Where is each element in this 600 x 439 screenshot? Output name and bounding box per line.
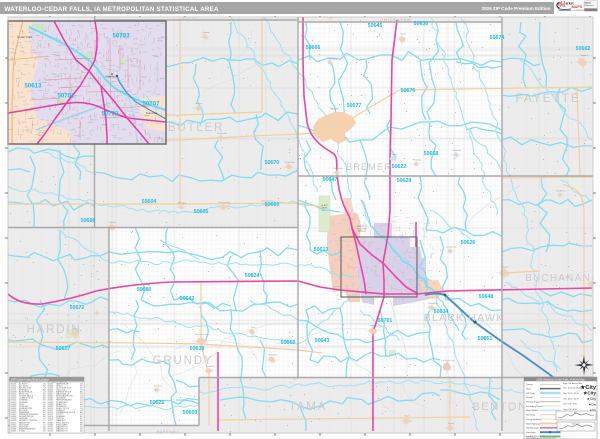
svg-text:Water Bodies: Water Bodies: [526, 409, 538, 412]
svg-text:Denver: Denver: [390, 153, 397, 156]
svg-text:50674: 50674: [490, 35, 505, 41]
svg-text:Rail Road: Rail Road: [526, 415, 536, 417]
svg-text:50613: 50613: [314, 247, 329, 253]
svg-text:50707: 50707: [143, 101, 161, 108]
svg-text:50668: 50668: [424, 151, 439, 157]
svg-text:BREMER: BREMER: [346, 162, 392, 172]
svg-text:US Highways: US Highways: [526, 428, 538, 430]
svg-text:County: County: [526, 383, 534, 386]
svg-text:State Highways: State Highways: [526, 422, 540, 425]
svg-text:Over 0.00 - 4.99: Over 0.00 - 4.99: [563, 408, 577, 411]
svg-text:Dysart: Dysart: [448, 422, 455, 425]
svg-text:ZIP Code ZIP Name Col: ZIP Code ZIP Name Col: [11, 381, 31, 383]
svg-text:Over 5.00 - 9.99: Over 5.00 - 9.99: [563, 403, 577, 406]
svg-text:Interstates: Interstates: [526, 431, 536, 434]
svg-text:50702: 50702: [102, 111, 120, 118]
svg-text:Parkersburg: Parkersburg: [218, 201, 231, 204]
svg-text:BUCHANAN: BUCHANAN: [525, 273, 591, 284]
svg-text:Over 70.00 per Sq Mi: Over 70.00 per Sq Mi: [563, 387, 582, 390]
svg-text:CHICKASAW: CHICKASAW: [380, 17, 411, 22]
svg-text:Cedar Falls: Cedar Falls: [17, 35, 33, 39]
svg-text:Kilometers: Kilometers: [572, 423, 581, 426]
svg-text:Tripoli: Tripoli: [400, 32, 406, 35]
svg-text:50629: 50629: [397, 178, 412, 184]
svg-text:50613: 50613: [25, 83, 43, 90]
svg-text:BENTON: BENTON: [472, 401, 527, 413]
svg-text:BLACK: BLACK: [321, 204, 328, 207]
svg-text:50608: 50608: [81, 218, 96, 224]
svg-text:★City: ★City: [587, 397, 597, 401]
svg-text:Beaman: Beaman: [154, 386, 163, 388]
svg-text:50638: 50638: [190, 346, 205, 352]
svg-text:Dike: Dike: [251, 327, 256, 329]
svg-text:50609: 50609: [183, 410, 198, 416]
svg-text:★City: ★City: [588, 402, 596, 406]
svg-text:GRUNDY: GRUNDY: [153, 355, 214, 367]
svg-text:Reinbeck: Reinbeck: [268, 354, 278, 356]
svg-text:Streets: Streets: [526, 396, 533, 399]
svg-text:50670: 50670: [265, 160, 280, 166]
svg-text:IONIA: IONIA: [19, 429, 25, 432]
svg-text:2026 ZIP Code Premium Edition: 2026 ZIP Code Premium Edition: [481, 6, 550, 11]
svg-text:ZIP Code: ZIP Code: [526, 393, 536, 395]
svg-text:FAYETTE: FAYETTE: [515, 91, 580, 105]
svg-text:State: State: [526, 387, 532, 390]
svg-text:Jesup: Jesup: [502, 267, 509, 269]
svg-text:50624: 50624: [245, 273, 260, 279]
svg-text:50672: 50672: [70, 305, 85, 311]
svg-text:50626: 50626: [461, 240, 476, 246]
svg-text:50662: 50662: [576, 46, 591, 52]
svg-text:TAMA: TAMA: [289, 401, 327, 413]
svg-text:2026 Waterloo-Cedar Falls, IA: 2026 Waterloo-Cedar Falls, IA MSA Map: [536, 377, 585, 381]
svg-text:50701: 50701: [378, 318, 393, 324]
svg-text:50648: 50648: [479, 294, 494, 300]
svg-text:50703: 50703: [113, 33, 131, 40]
svg-text:50665: 50665: [194, 209, 209, 215]
svg-text:50645: 50645: [368, 23, 383, 29]
svg-text:NAICS: NAICS: [585, 1, 592, 4]
svg-text:★City: ★City: [583, 391, 596, 396]
svg-text:50676: 50676: [401, 88, 416, 94]
svg-text:Hazleton: Hazleton: [557, 190, 566, 193]
svg-text:50645: 50645: [11, 430, 18, 432]
svg-text:Janesville: Janesville: [333, 168, 343, 170]
svg-text:50647: 50647: [323, 177, 338, 183]
svg-text:50703: 50703: [48, 430, 55, 432]
svg-text:Over 25.00 - 69.99: Over 25.00 - 69.99: [563, 392, 579, 395]
svg-text:Oelwein: Oelwein: [580, 55, 589, 57]
svg-text:Pops. Per Square Mile: Pops. Per Square Mile: [563, 382, 582, 385]
svg-text:La Porte City: La Porte City: [442, 359, 456, 362]
svg-text:50630: 50630: [414, 21, 429, 27]
svg-text:50642: 50642: [180, 296, 195, 302]
svg-text:Traer: Traer: [404, 414, 409, 417]
svg-text:Waverly: Waverly: [330, 108, 339, 111]
svg-text:Dunkerton: Dunkerton: [446, 246, 457, 249]
svg-text:Miles: Miles: [574, 413, 578, 415]
svg-text:Grundy Center: Grundy Center: [195, 333, 210, 336]
svg-text:WATERLOO-CEDAR FALLS, IA METRO: WATERLOO-CEDAR FALLS, IA METROPOLITAN ST…: [5, 6, 220, 13]
svg-text:50634: 50634: [434, 309, 449, 315]
svg-text:Waterloo: Waterloo: [105, 75, 117, 79]
svg-text:County Highways: County Highways: [526, 418, 542, 421]
svg-text:50677: 50677: [347, 103, 362, 109]
svg-text:50701: 50701: [58, 93, 76, 100]
svg-text:Greene: Greene: [202, 31, 210, 34]
svg-text:50622: 50622: [392, 164, 407, 170]
svg-text:50669: 50669: [281, 340, 296, 346]
svg-text:Shell Rock: Shell Rock: [285, 162, 296, 164]
svg-text:Primary Roads: Primary Roads: [526, 401, 540, 404]
svg-text:50680: 50680: [137, 287, 152, 293]
svg-text:50621: 50621: [150, 400, 165, 406]
svg-text:Plainfield: Plainfield: [327, 58, 337, 60]
svg-text:50643: 50643: [315, 338, 330, 344]
svg-text:50651: 50651: [478, 336, 493, 342]
svg-text:Ackley: Ackley: [110, 221, 117, 224]
svg-text:HARDIN: HARDIN: [27, 324, 82, 336]
svg-text:WATERLOO: WATERLOO: [56, 429, 68, 432]
svg-text:Reference: Reference: [585, 5, 595, 7]
svg-text:BUTLER: BUTLER: [168, 122, 224, 134]
svg-text:Over 10.00 - 24.99: Over 10.00 - 24.99: [563, 397, 579, 400]
svg-text:Readlyn: Readlyn: [413, 160, 422, 162]
svg-text:Aplington: Aplington: [177, 202, 187, 205]
svg-text:50660: 50660: [265, 202, 280, 208]
svg-text:50666: 50666: [306, 45, 321, 51]
svg-text:Evansdale: Evansdale: [146, 112, 158, 115]
svg-text:MAPS: MAPS: [572, 5, 583, 9]
svg-text:Gilbertville: Gilbertville: [428, 302, 439, 305]
svg-text:Fairbank: Fairbank: [453, 149, 462, 152]
svg-text:ZIP Code ZIP Name Col: ZIP Code ZIP Name Col: [48, 381, 68, 383]
svg-text:Hudson: Hudson: [370, 325, 378, 327]
svg-text:50604: 50604: [142, 199, 157, 205]
svg-text:Allison: Allison: [196, 102, 203, 105]
svg-text:50627: 50627: [56, 346, 71, 352]
